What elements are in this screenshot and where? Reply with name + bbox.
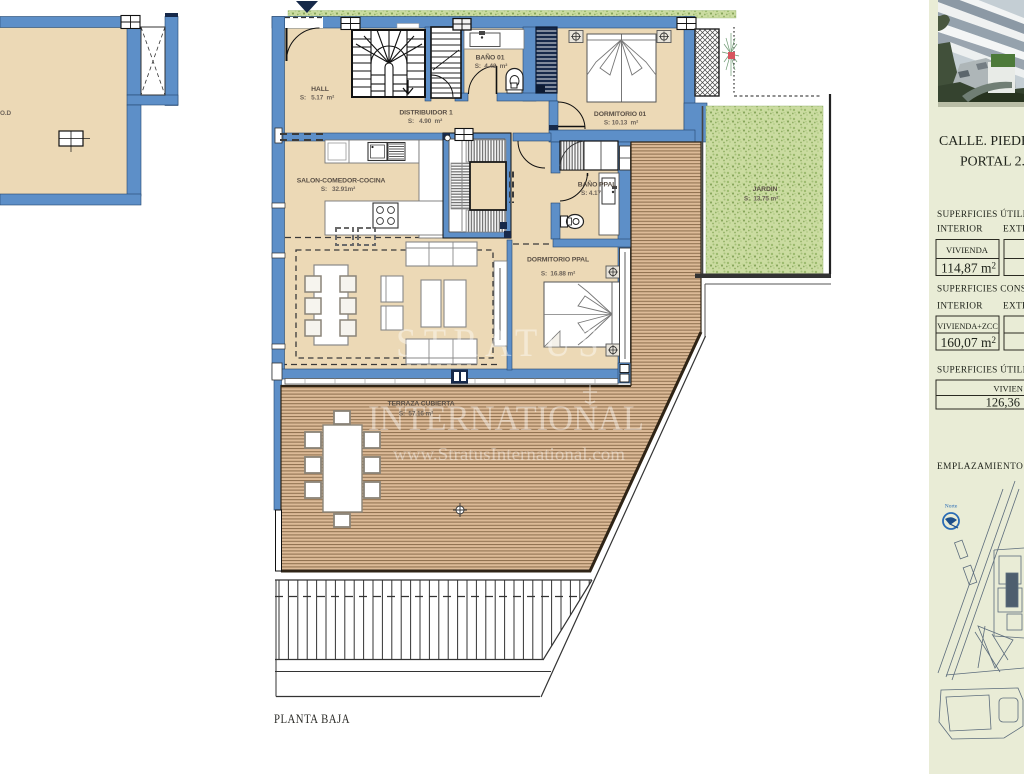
svg-text:INTERIOR: INTERIOR (937, 225, 983, 235)
svg-text:BAÑO PPAL: BAÑO PPAL (578, 180, 617, 189)
svg-text:S: 4.90 m²: S: 4.90 m² (408, 118, 442, 125)
svg-text:VIVIEN: VIVIEN (993, 384, 1023, 394)
svg-text:TERRAZA CUBIERTA: TERRAZA CUBIERTA (387, 401, 454, 408)
svg-text:S: 13.75 m²: S: 13.75 m² (744, 196, 778, 203)
svg-text:S: 4.43 m²: S: 4.43 m² (475, 63, 508, 70)
svg-text:CALLE. PIEDRA: CALLE. PIEDRA (939, 133, 1024, 148)
svg-text:DORMITORIO PPAL: DORMITORIO PPAL (527, 257, 589, 264)
svg-text:S: 5.17 m²: S: 5.17 m² (300, 95, 334, 102)
svg-text:HALL: HALL (311, 86, 329, 93)
svg-text:PORTAL 2.: PORTAL 2. (960, 154, 1024, 169)
svg-text:BAÑO 01: BAÑO 01 (476, 53, 505, 62)
svg-text:S: 57.16 m²: S: 57.16 m² (399, 411, 433, 418)
svg-text:S: 32.91m²: S: 32.91m² (321, 186, 355, 193)
svg-text:www.StratusInternational.com: www.StratusInternational.com (393, 444, 625, 464)
svg-text:SUPERFICIES ÚTILES: SUPERFICIES ÚTILES (937, 208, 1024, 220)
svg-text:S: 10.13 m²: S: 10.13 m² (604, 120, 638, 127)
svg-text:160,07 m2: 160,07 m2 (940, 335, 996, 350)
svg-text:EXTERIO: EXTERIO (1003, 225, 1024, 235)
svg-text:S: 16.88 m²: S: 16.88 m² (541, 271, 575, 278)
svg-text:Norte: Norte (945, 504, 958, 510)
svg-text:DORMITORIO 01: DORMITORIO 01 (594, 111, 647, 118)
svg-text:STRATUS: STRATUS (396, 320, 606, 365)
svg-text:O.D: O.D (0, 110, 12, 117)
svg-text:EMPLAZAMIENTO GE: EMPLAZAMIENTO GE (937, 462, 1024, 472)
svg-text:126,36: 126,36 (986, 396, 1020, 410)
svg-text:DISTRIBUIDOR 1: DISTRIBUIDOR 1 (399, 110, 453, 117)
svg-text:114,87 m2: 114,87 m2 (941, 261, 996, 276)
svg-text:JARDIN: JARDIN (753, 186, 778, 193)
svg-text:SUPERFICIES CONSTR: SUPERFICIES CONSTR (937, 285, 1024, 295)
svg-text:SUPERFICIES ÚTILES: SUPERFICIES ÚTILES (937, 364, 1024, 376)
svg-text:S: 4.17: S: 4.17 (581, 190, 601, 197)
svg-text:VIVIENDA: VIVIENDA (946, 245, 989, 255)
svg-text:PLANTA BAJA: PLANTA BAJA (274, 711, 350, 726)
svg-text:SALON-COMEDOR-COCINA: SALON-COMEDOR-COCINA (297, 178, 386, 185)
svg-text:VIVIENDA+ZCC: VIVIENDA+ZCC (937, 322, 998, 331)
svg-text:INTERIOR: INTERIOR (937, 302, 983, 312)
svg-text:EXTERIO: EXTERIO (1003, 302, 1024, 312)
